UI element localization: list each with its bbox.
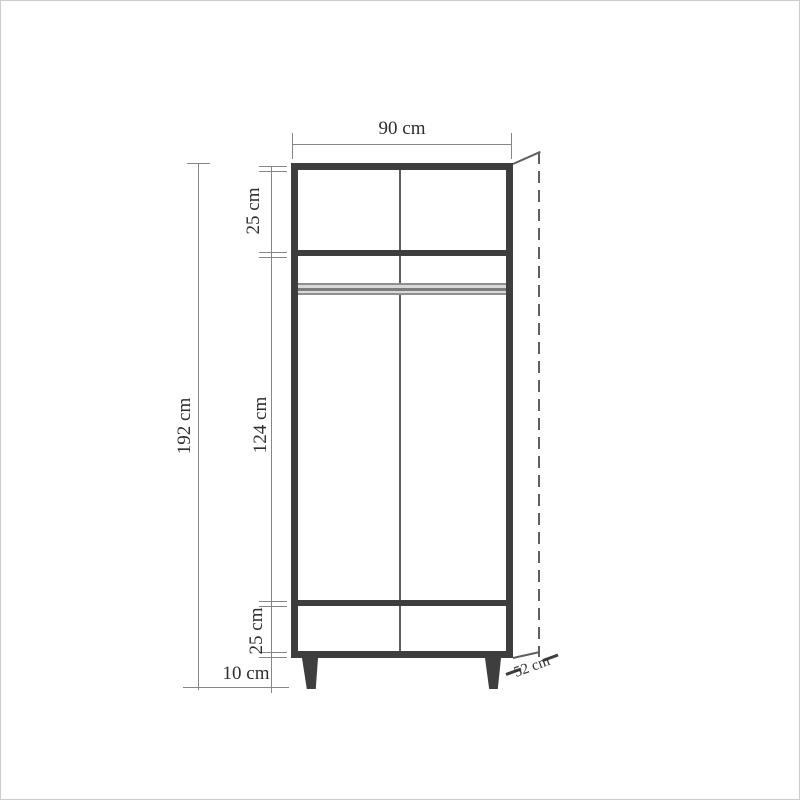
hanging-rail bbox=[298, 283, 506, 295]
door-divider-line bbox=[399, 170, 401, 651]
bottom-section-label: 25 cm bbox=[246, 601, 268, 661]
dimension-drawing: 90 cm 192 cm 25 cm 124 cm 25 cm 10 cm 52… bbox=[0, 0, 800, 800]
depth-edge-dashed bbox=[538, 152, 540, 657]
width-dimension-tick-right bbox=[511, 133, 512, 159]
ground-reference-line bbox=[183, 687, 289, 688]
width-dimension-line bbox=[292, 144, 511, 145]
top-section-label: 25 cm bbox=[243, 181, 265, 241]
bottom-shelf-line bbox=[298, 600, 506, 606]
wardrobe-outline bbox=[291, 163, 513, 658]
height-dimension-tick-top bbox=[187, 163, 210, 164]
top-shelf-line bbox=[298, 250, 506, 256]
left-leg bbox=[302, 658, 318, 689]
door-section-label: 124 cm bbox=[250, 389, 272, 461]
depth-edge-top bbox=[513, 151, 541, 165]
section-tick bbox=[259, 257, 287, 258]
section-tick bbox=[259, 171, 287, 172]
right-leg bbox=[485, 658, 501, 689]
section-tick bbox=[259, 252, 287, 253]
height-dimension-label: 192 cm bbox=[174, 390, 196, 462]
width-dimension-label: 90 cm bbox=[357, 118, 447, 140]
width-dimension-tick-left bbox=[292, 133, 293, 159]
height-dimension-line bbox=[198, 163, 199, 690]
leg-height-label: 10 cm bbox=[214, 663, 278, 685]
section-tick bbox=[259, 166, 287, 167]
